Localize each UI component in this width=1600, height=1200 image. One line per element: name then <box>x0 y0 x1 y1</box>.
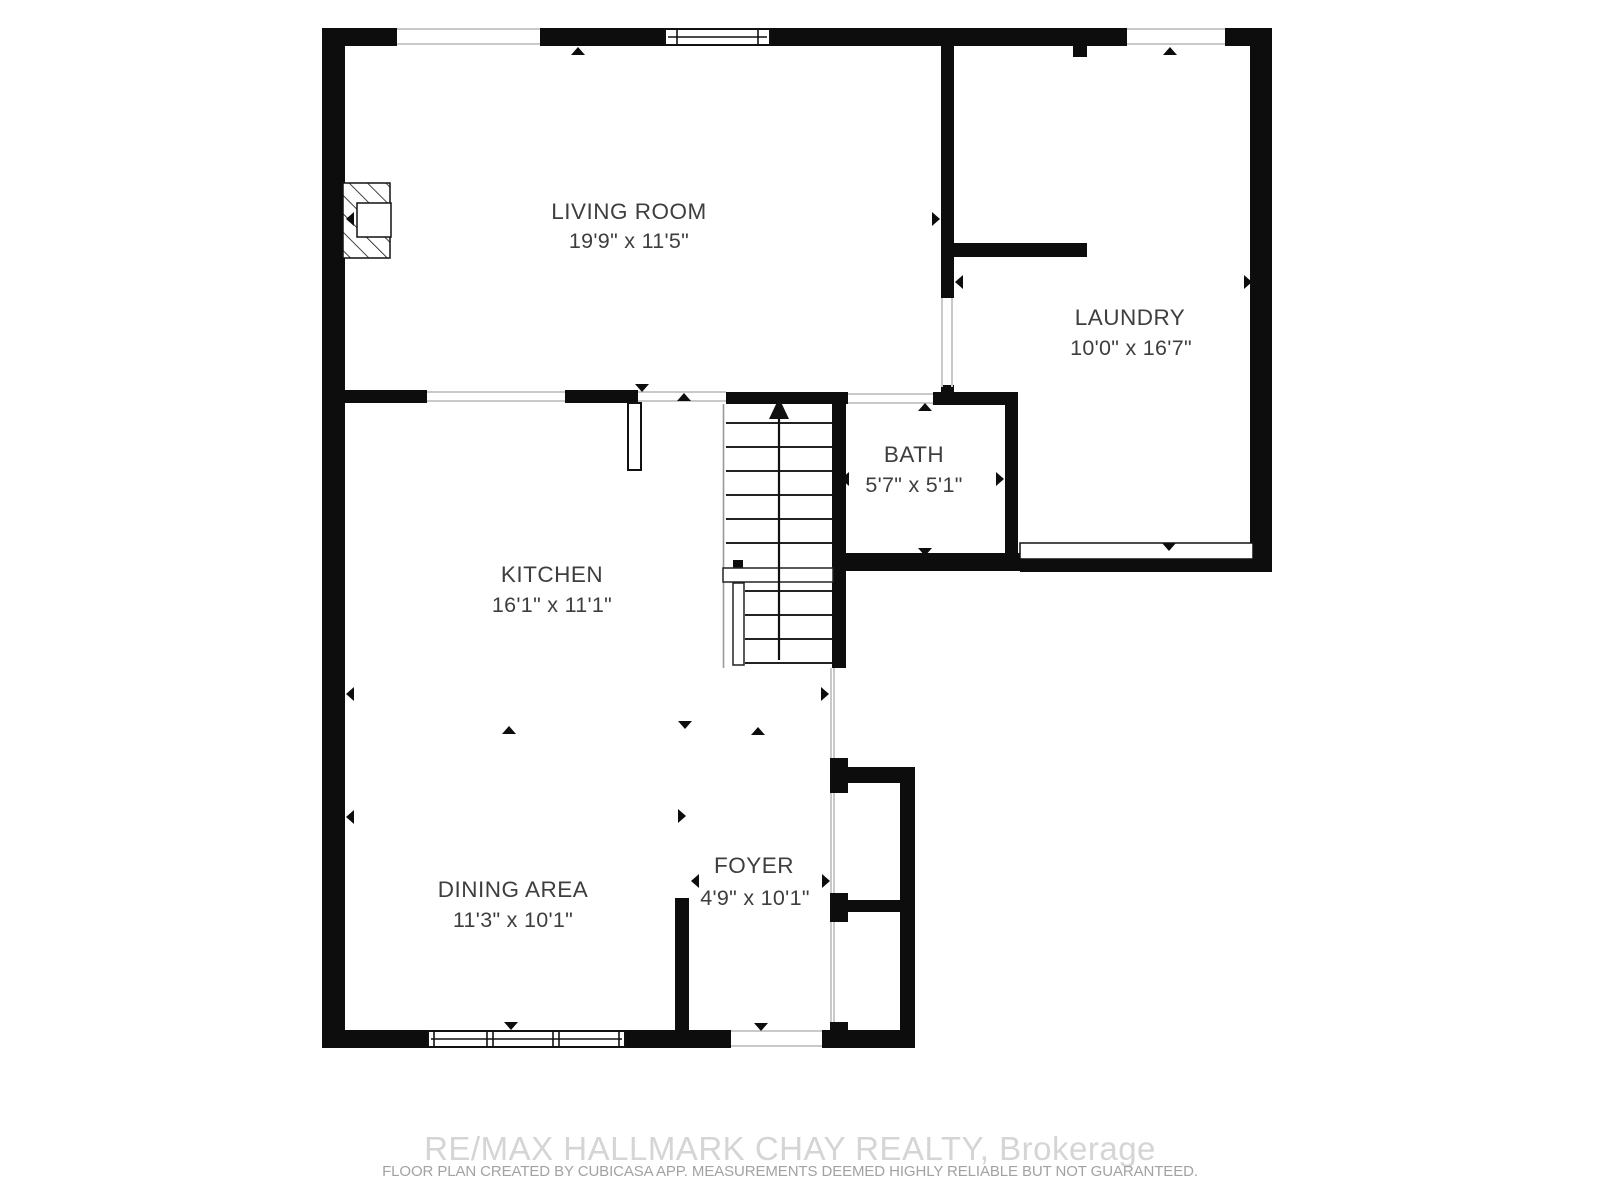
room-dims-laundry: 10'0" x 16'7" <box>1070 336 1192 360</box>
fireplace-firebox <box>357 203 391 237</box>
opening-closet1-door <box>833 793 835 893</box>
opening-kitchen-hall <box>638 391 726 393</box>
opening-laundry-door <box>1127 28 1225 30</box>
wall-bottom-a <box>322 1030 428 1048</box>
wall-laundry-closet-stub <box>1073 43 1087 57</box>
wall-right <box>1250 28 1272 572</box>
opening-closet2-door <box>830 922 832 1022</box>
floor-plan-drawing: LIVING ROOM 19'9" x 11'5" LAUNDRY 10'0" … <box>0 0 1600 1200</box>
wall-stairs-right <box>832 392 846 668</box>
opening-front-door <box>731 1030 822 1032</box>
wall-closet-stub-top <box>830 758 848 793</box>
opening-living-laundry <box>941 298 943 387</box>
wall-laundry-closet-bottom <box>952 243 1087 257</box>
wall-closet-stub-bottom <box>830 1022 848 1034</box>
opening-top-window <box>397 28 540 30</box>
wall-stairs-top <box>726 392 848 404</box>
opening-foyer-side <box>830 668 832 758</box>
wall-top-b <box>540 28 665 46</box>
opening-closet2-door <box>833 922 835 1022</box>
room-dims-foyer: 4'9" x 10'1" <box>700 886 810 910</box>
opening-laundry-door <box>1127 43 1225 45</box>
wall-closet-stub-mid <box>830 893 848 922</box>
room-label-laundry: LAUNDRY <box>1075 305 1186 330</box>
door-leaf-kitchen <box>628 403 641 470</box>
opening-top-window <box>397 43 540 45</box>
opening-bath-door <box>848 402 933 404</box>
wall-closet-divider <box>848 900 900 912</box>
room-label-bath: BATH <box>884 442 944 467</box>
wall-living-kitchen-b <box>565 390 638 403</box>
opening-bath-door <box>848 393 933 395</box>
room-dims-dining: 11'3" x 10'1" <box>453 908 573 932</box>
disclaimer-text: FLOOR PLAN CREATED BY CUBICASA APP. MEAS… <box>382 1163 1198 1180</box>
wall-living-laundry <box>941 46 954 298</box>
footer: RE/MAX HALLMARK CHAY REALTY, Brokerage F… <box>382 1130 1198 1180</box>
stair-stringer <box>733 583 744 665</box>
room-label-living: LIVING ROOM <box>551 199 707 224</box>
wall-dining-foyer <box>675 898 689 1032</box>
brokerage-watermark: RE/MAX HALLMARK CHAY REALTY, Brokerage <box>424 1130 1156 1167</box>
wall-laundry-sill <box>1020 558 1272 572</box>
wall-left <box>322 28 345 1048</box>
room-dims-bath: 5'7" x 5'1" <box>865 473 962 497</box>
room-dims-living: 19'9" x 11'5" <box>569 229 689 253</box>
room-label-kitchen: KITCHEN <box>501 562 603 587</box>
wall-living-kitchen-a <box>345 390 427 403</box>
room-label-dining: DINING AREA <box>438 877 589 902</box>
opening-living-laundry <box>951 298 953 387</box>
canvas-background <box>0 0 1600 1200</box>
window-bottom-triple <box>428 1031 625 1047</box>
floor-plan-page: LIVING ROOM 19'9" x 11'5" LAUNDRY 10'0" … <box>0 0 1600 1200</box>
room-dims-kitchen: 16'1" x 11'1" <box>492 593 612 617</box>
wall-bath-right <box>1005 392 1018 562</box>
opening-living-kitchen <box>427 391 565 393</box>
opening-closet1-door <box>830 793 832 893</box>
opening-front-door <box>731 1045 822 1047</box>
window-laundry <box>1020 543 1253 559</box>
opening-foyer-side <box>833 668 835 758</box>
room-label-foyer: FOYER <box>714 853 794 878</box>
wall-bath-bottom <box>840 553 1020 571</box>
wall-top-a <box>322 28 397 46</box>
wall-closet-right <box>900 767 915 1048</box>
wall-bottom-b <box>625 1030 731 1048</box>
opening-living-kitchen <box>427 400 565 402</box>
window-top <box>665 29 770 45</box>
